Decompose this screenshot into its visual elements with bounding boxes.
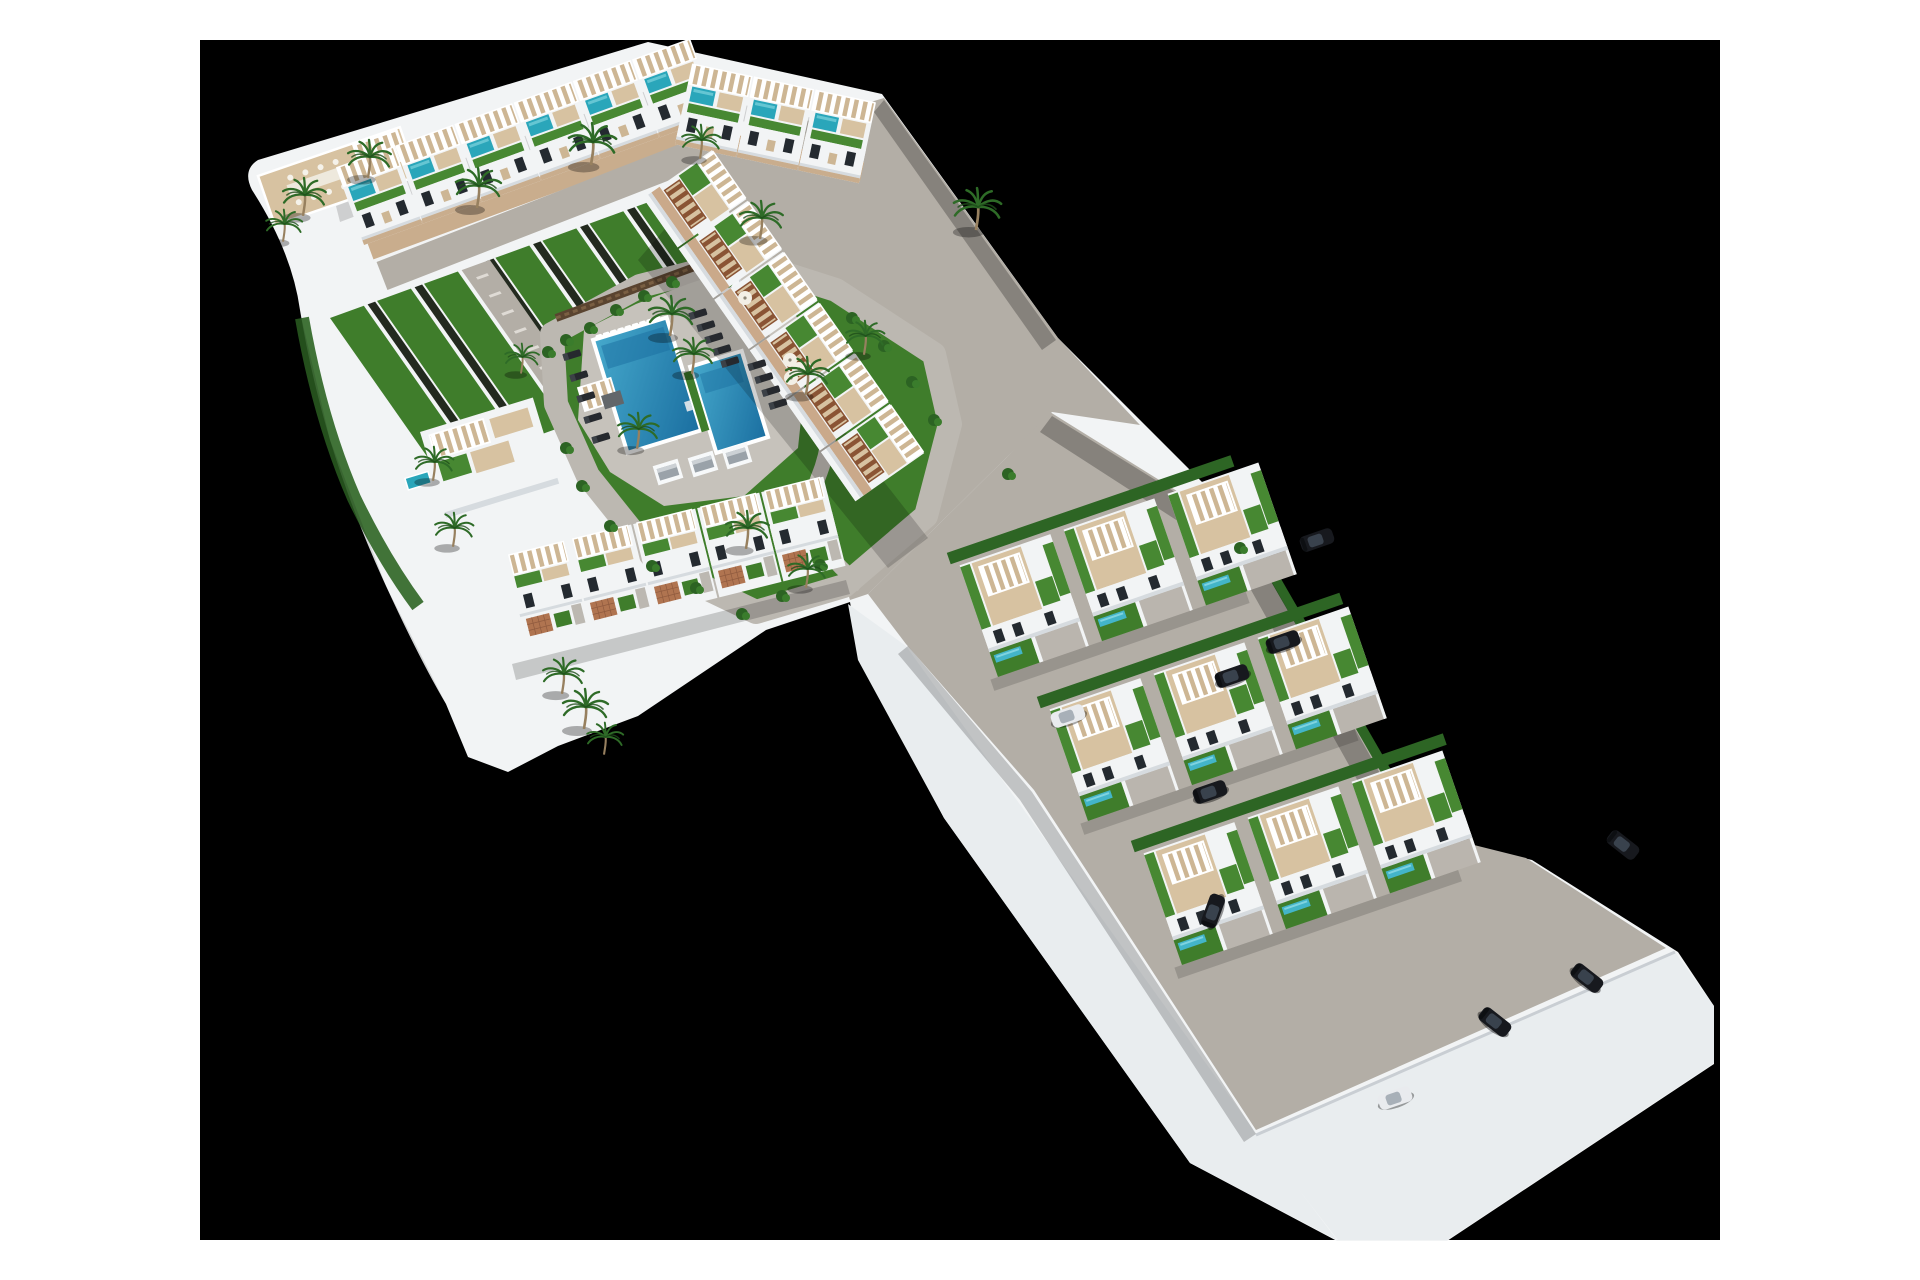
render-page bbox=[0, 0, 1920, 1280]
site-render bbox=[0, 0, 1920, 1280]
parasol bbox=[738, 291, 752, 305]
